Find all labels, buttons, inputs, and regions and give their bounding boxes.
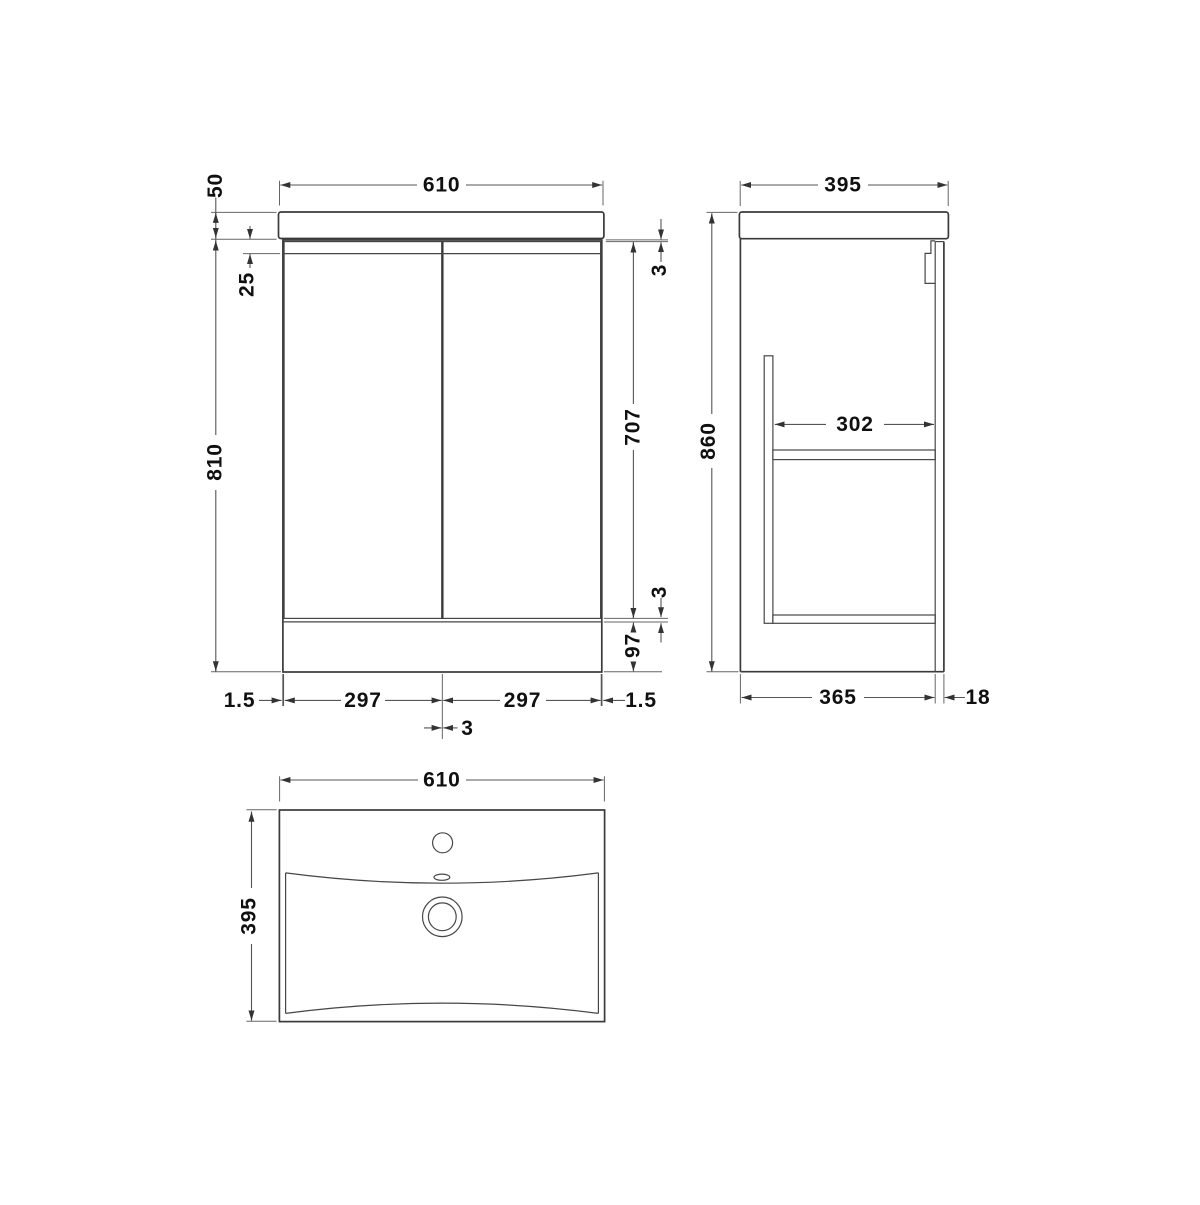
dim-front-width: 610 — [423, 174, 460, 197]
dim-front-handle-offset: 25 — [236, 272, 259, 297]
dim-front-basin-thickness: 50 — [204, 173, 227, 198]
dim-front-plinth-height: 97 — [622, 633, 645, 658]
top-basin-outline — [279, 810, 604, 1022]
technical-drawing-page: 610 50 810 25 707 3 3 97 — [0, 0, 1200, 1200]
dim-side-depth: 395 — [824, 174, 861, 197]
dim-front-edge-left: 1.5 — [224, 689, 256, 712]
overflow-slot — [434, 874, 450, 880]
dim-front-cabinet-height: 810 — [204, 443, 227, 480]
dim-side-total-height: 860 — [697, 422, 720, 459]
dim-top-width: 610 — [423, 769, 460, 792]
side-jpull-handle-profile — [925, 241, 935, 284]
dim-top-depth: 395 — [238, 897, 261, 934]
side-bottom-panel — [773, 615, 935, 623]
dim-side-door-thickness: 18 — [966, 686, 991, 709]
side-back-panel — [764, 356, 773, 624]
dim-front-edge-right: 1.5 — [625, 689, 657, 712]
front-view: 610 50 810 25 707 3 3 97 — [204, 173, 672, 740]
dim-front-door-left: 297 — [344, 689, 381, 712]
top-view: 610 395 — [238, 769, 605, 1022]
dim-front-gap-bottom: 3 — [648, 586, 671, 598]
dim-front-door-right: 297 — [504, 689, 541, 712]
top-bowl-front-curve — [286, 1003, 599, 1013]
dim-side-internal-depth: 302 — [836, 413, 873, 436]
side-shelf — [773, 450, 935, 460]
dim-front-center-gap: 3 — [461, 717, 473, 740]
tap-hole — [433, 833, 453, 853]
front-basin-top — [279, 212, 604, 239]
side-basin-top — [739, 212, 948, 239]
side-view: 395 860 302 365 18 — [697, 174, 990, 710]
dim-side-base-depth: 365 — [819, 686, 856, 709]
dim-front-door-height: 707 — [622, 408, 645, 445]
drain-hole-inner — [428, 903, 456, 931]
technical-drawing: 610 50 810 25 707 3 3 97 — [0, 0, 1200, 1200]
dim-front-gap-top: 3 — [648, 264, 671, 276]
